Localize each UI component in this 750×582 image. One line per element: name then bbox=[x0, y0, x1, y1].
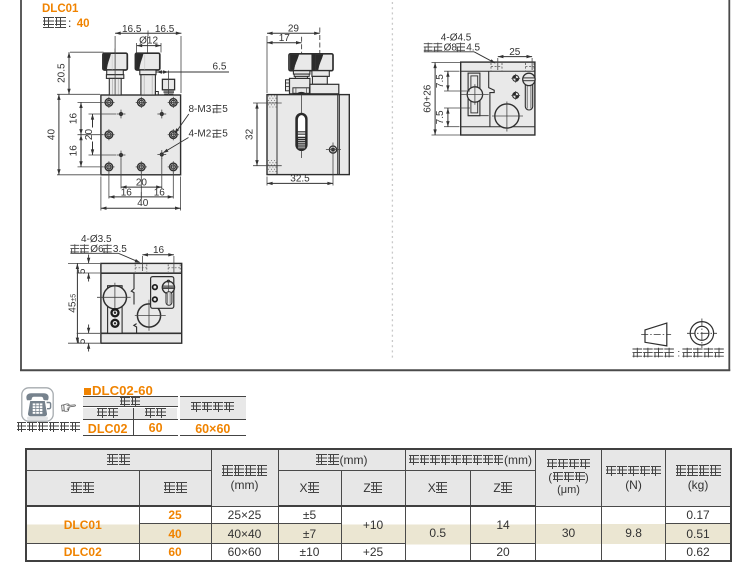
svg-text:20: 20 bbox=[84, 129, 95, 141]
svg-text:40: 40 bbox=[137, 198, 149, 209]
svg-text:40: 40 bbox=[46, 129, 57, 141]
svg-text:7.5: 7.5 bbox=[435, 74, 446, 88]
svg-text:16: 16 bbox=[153, 245, 165, 256]
svg-text:32: 32 bbox=[244, 128, 255, 140]
svg-text:7.5: 7.5 bbox=[435, 110, 446, 124]
svg-text:4-M2: 4-M2 bbox=[189, 129, 212, 140]
svg-text:16: 16 bbox=[68, 145, 79, 157]
svg-text:45±5: 45±5 bbox=[67, 294, 78, 313]
svg-text:60+26: 60+26 bbox=[423, 84, 434, 113]
svg-text::: : bbox=[677, 348, 680, 359]
svg-text:8-M3: 8-M3 bbox=[189, 104, 212, 115]
svg-text:5: 5 bbox=[77, 338, 88, 344]
svg-text:5: 5 bbox=[222, 104, 228, 115]
svg-text:5: 5 bbox=[77, 268, 88, 274]
svg-text:5: 5 bbox=[222, 129, 228, 140]
svg-text:16: 16 bbox=[68, 113, 79, 125]
svg-text:6.5: 6.5 bbox=[213, 62, 227, 73]
svg-text:20.5: 20.5 bbox=[57, 63, 68, 83]
